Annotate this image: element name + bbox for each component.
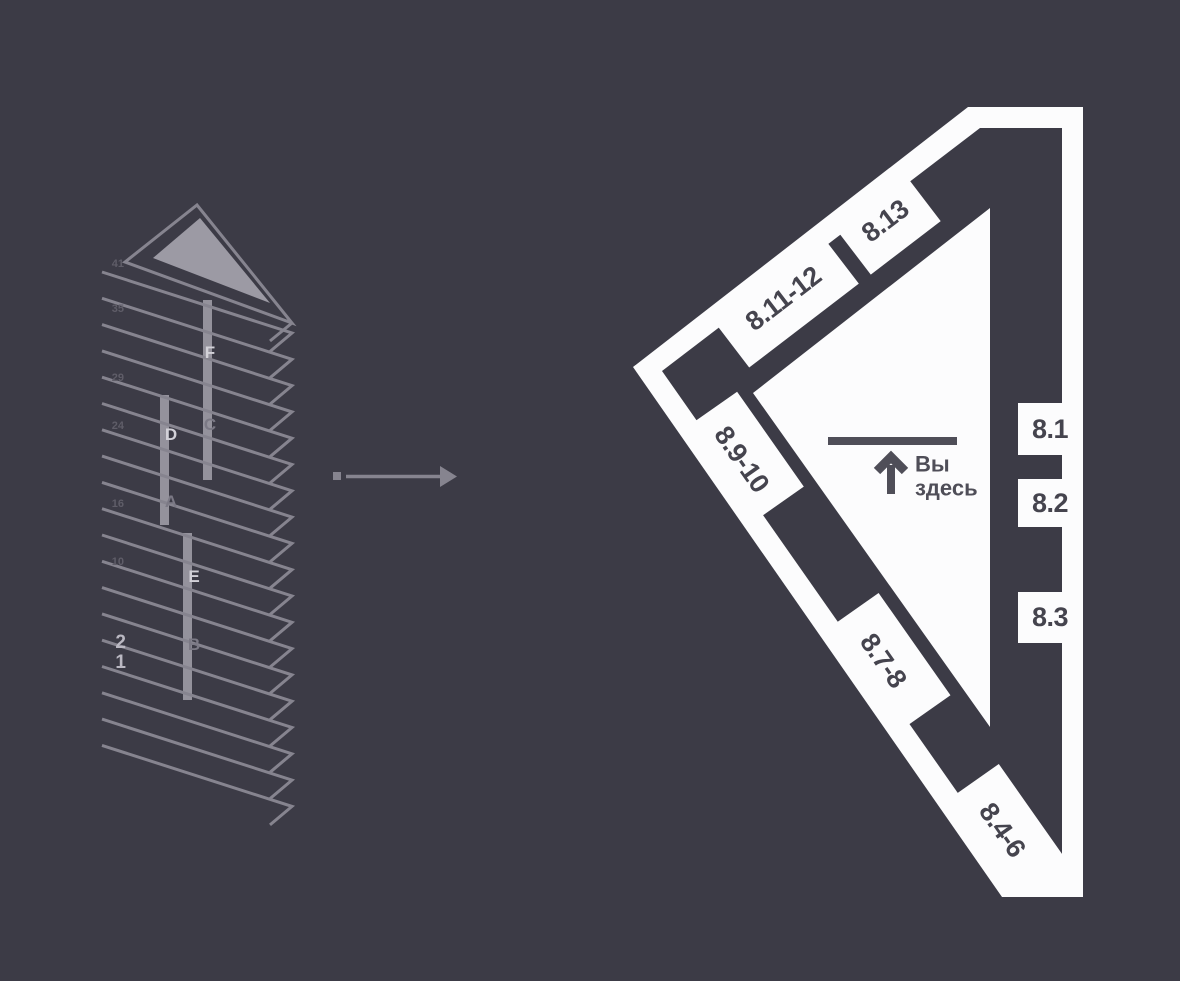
floor-number: 41 <box>112 258 124 270</box>
floor-plate-line <box>102 351 292 431</box>
unit-label-8-1: 8.1 <box>1032 414 1069 444</box>
floor-number: 29 <box>112 372 124 384</box>
floor-plate-line <box>102 325 292 405</box>
riser-letter-b: B <box>188 635 200 654</box>
riser-bar-fc <box>203 300 212 480</box>
unit-label-8-3: 8.3 <box>1032 602 1069 632</box>
floor-plate-line <box>102 298 292 378</box>
floor-plate-line <box>102 719 292 799</box>
floor-number: 35 <box>112 303 124 315</box>
flow-arrow-tail <box>333 472 341 480</box>
floor-plate-line <box>102 667 292 747</box>
riser-letter-a: A <box>165 492 177 511</box>
you-are-here-line1: Вы <box>915 452 950 477</box>
floor-plate-stack <box>102 272 292 825</box>
floor-plate-line <box>102 588 292 668</box>
floor-number-scale: 41 35 29 24 16 10 2 1 <box>112 258 127 673</box>
flow-arrow <box>333 466 457 487</box>
floor-plate-line <box>102 404 292 484</box>
riser-letter-e: E <box>188 567 199 586</box>
riser-letter-d: D <box>165 425 177 444</box>
floor-plate-line <box>102 456 292 535</box>
riser-letter-c: C <box>204 415 216 434</box>
floor-number-highlight: 2 <box>115 632 126 653</box>
plan-unit-band: 8.11-12 8.13 8.1 8.2 8.3 8.9-10 8.7-8 <box>662 128 1094 929</box>
flow-arrow-head <box>440 466 457 487</box>
floor-number-highlight: 1 <box>115 652 126 673</box>
up-arrow-shaft <box>887 465 895 494</box>
wayfinding-sign: 41 35 29 24 16 10 2 1 F C D A E B <box>0 0 1180 981</box>
floor-plate-line <box>102 377 292 457</box>
wayfinding-canvas: 41 35 29 24 16 10 2 1 F C D A E B <box>0 0 1180 981</box>
floor-plate-line <box>102 482 292 562</box>
you-are-here-wall-bar <box>828 437 957 445</box>
floor-number: 10 <box>112 556 124 568</box>
floor-number: 16 <box>112 498 124 510</box>
floor-plate-line <box>102 745 292 825</box>
building-diagram: 41 35 29 24 16 10 2 1 F C D A E B <box>102 205 292 825</box>
unit-label-8-2: 8.2 <box>1032 488 1068 518</box>
floor-plate-line <box>102 693 292 773</box>
floor-plate-line <box>102 430 292 510</box>
floor-plan: 8.11-12 8.13 8.1 8.2 8.3 8.9-10 8.7-8 <box>633 107 1094 929</box>
top-floor-highlight <box>153 218 270 303</box>
floor-number: 24 <box>112 420 125 432</box>
you-are-here-line2: здесь <box>915 476 978 501</box>
riser-letter-f: F <box>205 343 215 362</box>
